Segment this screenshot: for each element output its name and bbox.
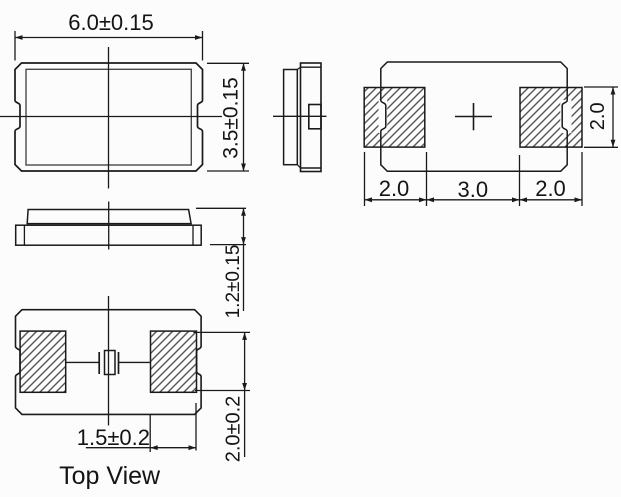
svg-text:2.0: 2.0 (587, 102, 609, 130)
svg-text:Top View: Top View (59, 462, 161, 490)
svg-text:1.2±0.15: 1.2±0.15 (223, 245, 244, 319)
svg-text:2.0±0.2: 2.0±0.2 (223, 396, 245, 463)
svg-text:3.0: 3.0 (458, 177, 489, 202)
svg-text:2.0: 2.0 (535, 176, 566, 201)
svg-text:3.5±0.15: 3.5±0.15 (220, 77, 243, 159)
svg-text:6.0±0.15: 6.0±0.15 (68, 10, 153, 35)
svg-text:1.5±0.2: 1.5±0.2 (77, 425, 150, 450)
svg-text:2.0: 2.0 (379, 176, 410, 201)
